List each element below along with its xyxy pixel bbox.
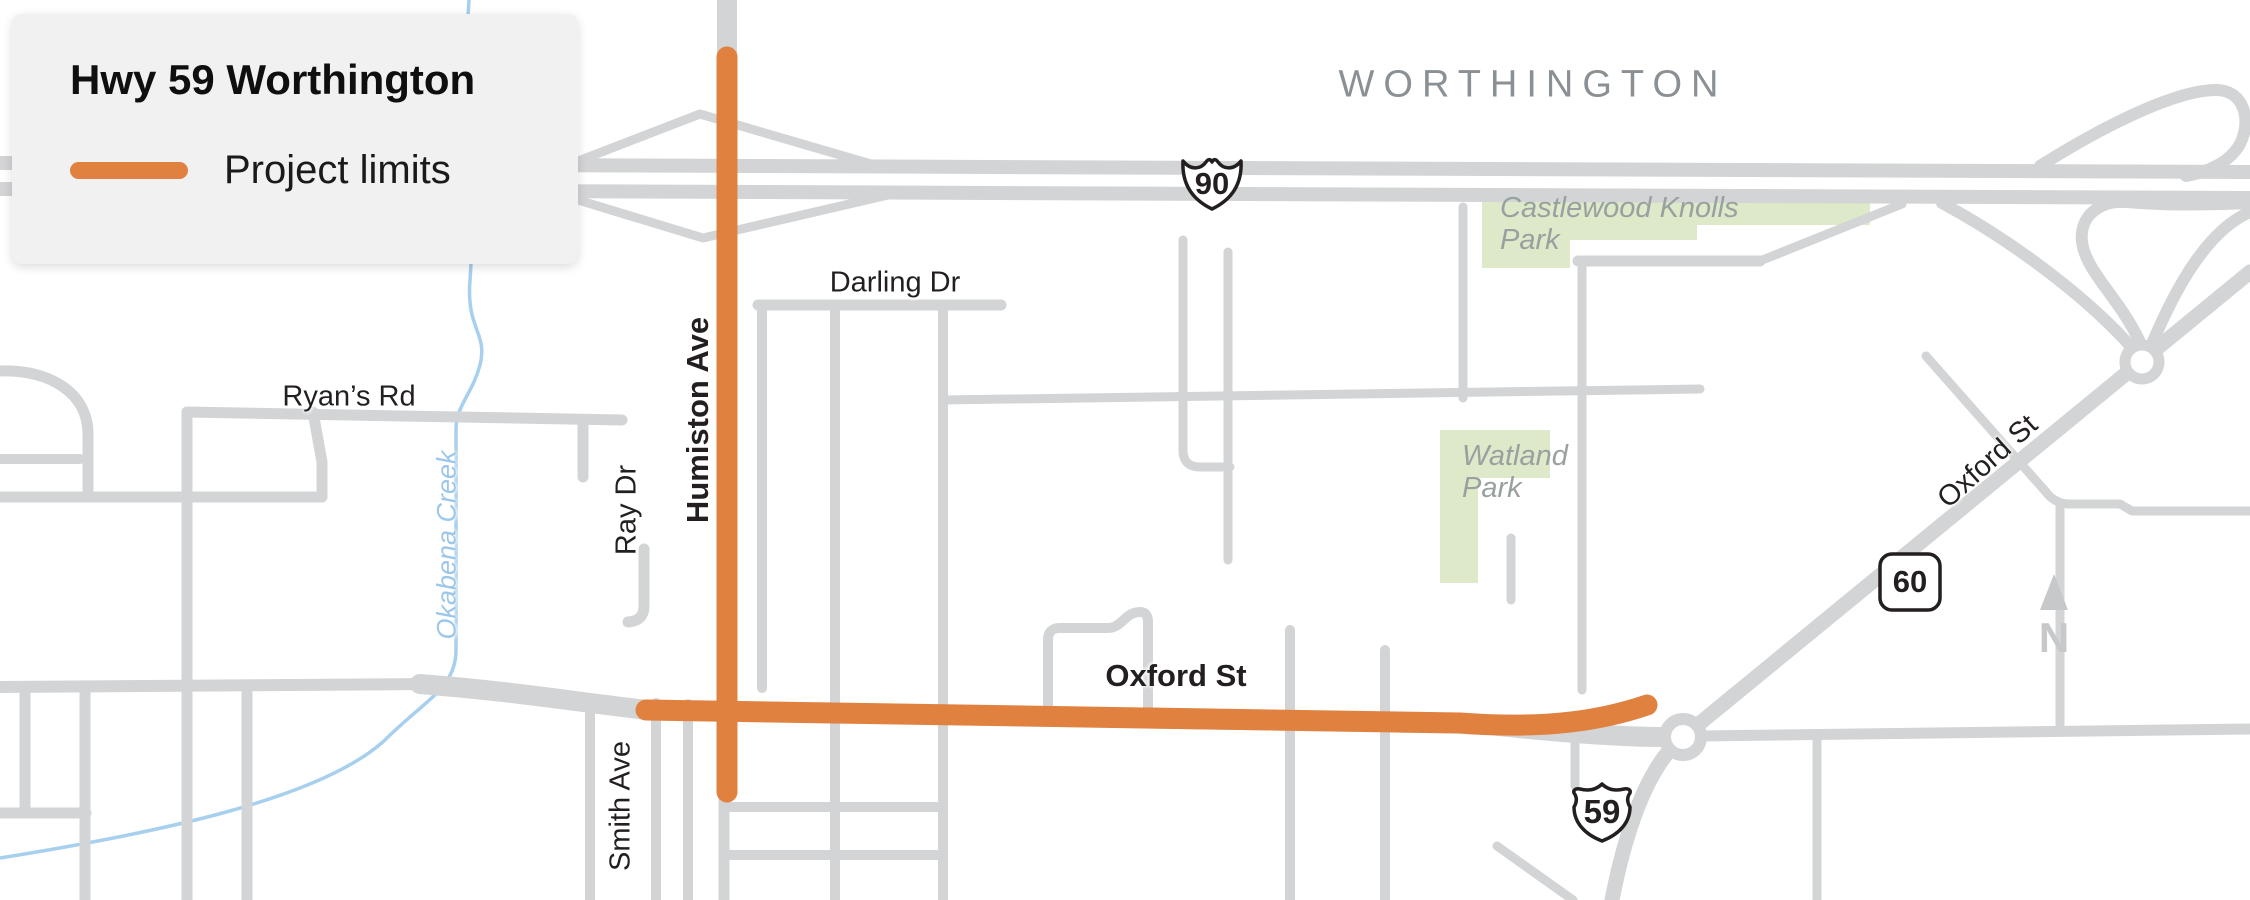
park-label-castlewood-line1: Castlewood Knolls (1500, 192, 1739, 224)
legend-title: Hwy 59 Worthington (70, 56, 538, 104)
city-label: WORTHINGTON (1339, 64, 1728, 107)
road-minor-southeast (1497, 846, 1573, 900)
street-label-humiston-ave: Humiston Ave (680, 317, 716, 523)
water-label-okabena-creek: Okabena Creek (432, 450, 463, 639)
street-label-ryans-rd: Ryan’s Rd (282, 381, 415, 414)
street-curve-left (0, 371, 88, 497)
project-limit-oxford-st (646, 705, 1647, 725)
roundabout-hwy60 (2125, 345, 2159, 379)
street-label-oxford-st: Oxford St (1105, 658, 1246, 694)
project-limits-swatch-icon (70, 162, 188, 179)
park-label-watland-line1: Watland (1462, 440, 1568, 472)
park-label-watland-line2: Park (1462, 472, 1568, 504)
road-hwy60-diagonal (1683, 272, 2250, 737)
park-label-watland: Watland Park (1462, 440, 1568, 504)
street-v1183 (1183, 240, 1230, 467)
road-oxford-west (0, 684, 428, 687)
legend-item-label: Project limits (224, 148, 451, 193)
north-label: N (2039, 614, 2069, 662)
legend-card: Hwy 59 Worthington Project limits (12, 14, 578, 264)
street-label-darling-dr: Darling Dr (830, 267, 961, 300)
ramp-loop-northeast (2040, 90, 2245, 176)
park-label-castlewood-line2: Park (1500, 224, 1739, 256)
street-label-smith-ave: Smith Ave (605, 741, 638, 871)
roundabout-hwy59 (1665, 719, 1701, 755)
street-label-ray-dr: Ray Dr (611, 465, 644, 555)
road-east-of-roundabout (1700, 729, 2250, 736)
mn60-shield-number: 60 (1893, 564, 1927, 600)
street-v316 (313, 412, 322, 497)
park-label-castlewood: Castlewood Knolls Park (1500, 192, 1739, 256)
legend-row-project-limits: Project limits (70, 148, 538, 193)
i90-shield-number: 90 (1195, 166, 1229, 202)
us59-shield-number: 59 (1584, 793, 1621, 831)
project-map: WORTHINGTON Darling Dr Ryan’s Rd Humisto… (0, 0, 2250, 900)
street-ray-j (628, 549, 644, 622)
